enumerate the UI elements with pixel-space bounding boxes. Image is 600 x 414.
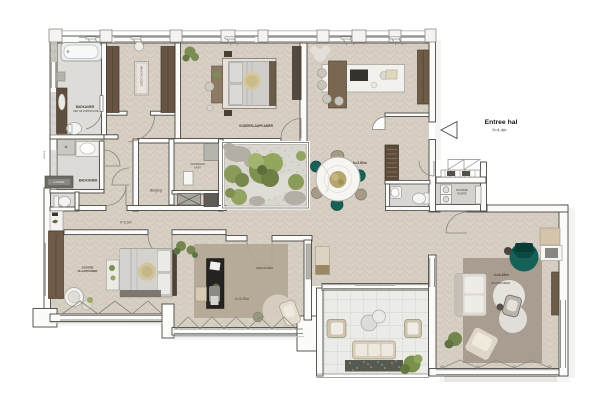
svg-text:WERKKAMER: WERKKAMER (256, 266, 273, 270)
svg-text:S-KOKER: S-KOKER (54, 181, 65, 184)
svg-text:h=4.45m: h=4.45m (494, 273, 508, 277)
svg-text:h=2.80m: h=2.80m (353, 161, 367, 165)
svg-text:Entree hal: Entree hal (485, 119, 518, 126)
svg-text:sparing: sparing (42, 150, 46, 159)
svg-text:OUDERSLAAPKAMER: OUDERSLAAPKAMER (239, 124, 274, 128)
svg-text:SLAAPKAMER: SLAAPKAMER (78, 269, 98, 273)
svg-text:h=4.4m: h=4.4m (492, 128, 507, 133)
svg-text:BADKAMER: BADKAMER (79, 179, 98, 183)
svg-text:BADKAMER: BADKAMER (76, 105, 95, 109)
svg-text:h=3.20m: h=3.20m (235, 297, 249, 301)
svg-text:WALK-IN CLOSET: WALK-IN CLOSET (140, 66, 143, 87)
svg-text:h=2.6m: h=2.6m (120, 221, 132, 225)
svg-text:VOORRAAD: VOORRAAD (190, 162, 205, 166)
svg-text:Berging: Berging (150, 189, 162, 193)
svg-text:MET INLOOPDOUCHE: MET INLOOPDOUCHE (73, 110, 98, 113)
svg-text:WOONKAMER: WOONKAMER (491, 281, 510, 285)
svg-text:RUIMTE: RUIMTE (457, 192, 467, 195)
svg-text:KAST: KAST (194, 166, 201, 170)
